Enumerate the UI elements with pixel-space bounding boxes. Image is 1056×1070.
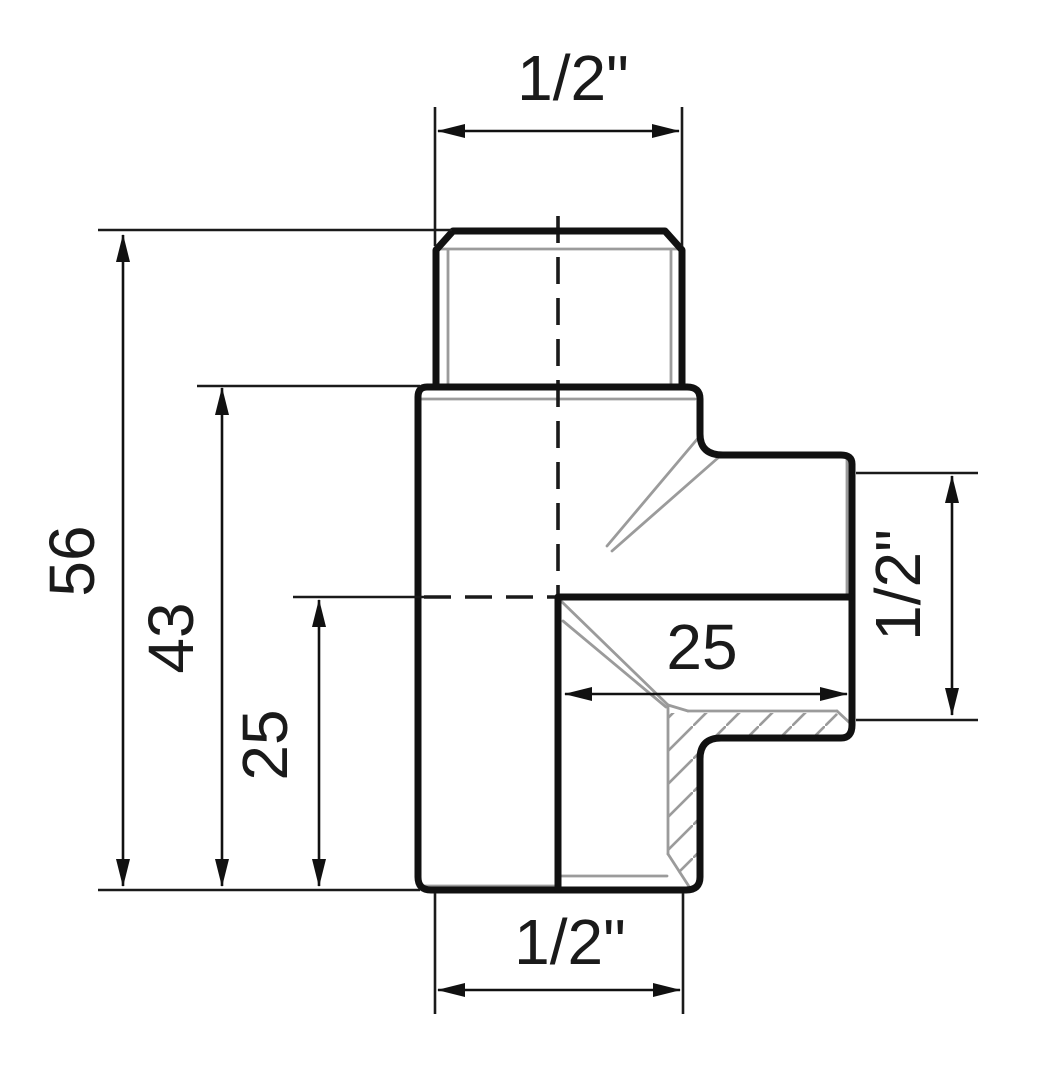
dim-label-center-height: 25 <box>233 709 297 780</box>
dimension-lines <box>123 131 952 990</box>
dim-label-branch-depth: 25 <box>666 615 737 679</box>
centerlines <box>424 216 558 597</box>
drawing-canvas: 1/2" 56 43 25 25 1/2" 1/2" <box>0 0 1056 1070</box>
section-hatching <box>650 690 870 905</box>
dim-label-bottom-thread: 1/2" <box>514 910 626 974</box>
part-outline <box>418 231 852 890</box>
thread-lines <box>420 249 851 888</box>
body-outline <box>418 387 852 890</box>
dim-label-branch-thread: 1/2" <box>866 529 930 641</box>
dim-label-overall-height: 56 <box>40 525 104 596</box>
dim-label-body-height: 43 <box>139 602 203 673</box>
dim-label-top-thread: 1/2" <box>517 46 629 110</box>
